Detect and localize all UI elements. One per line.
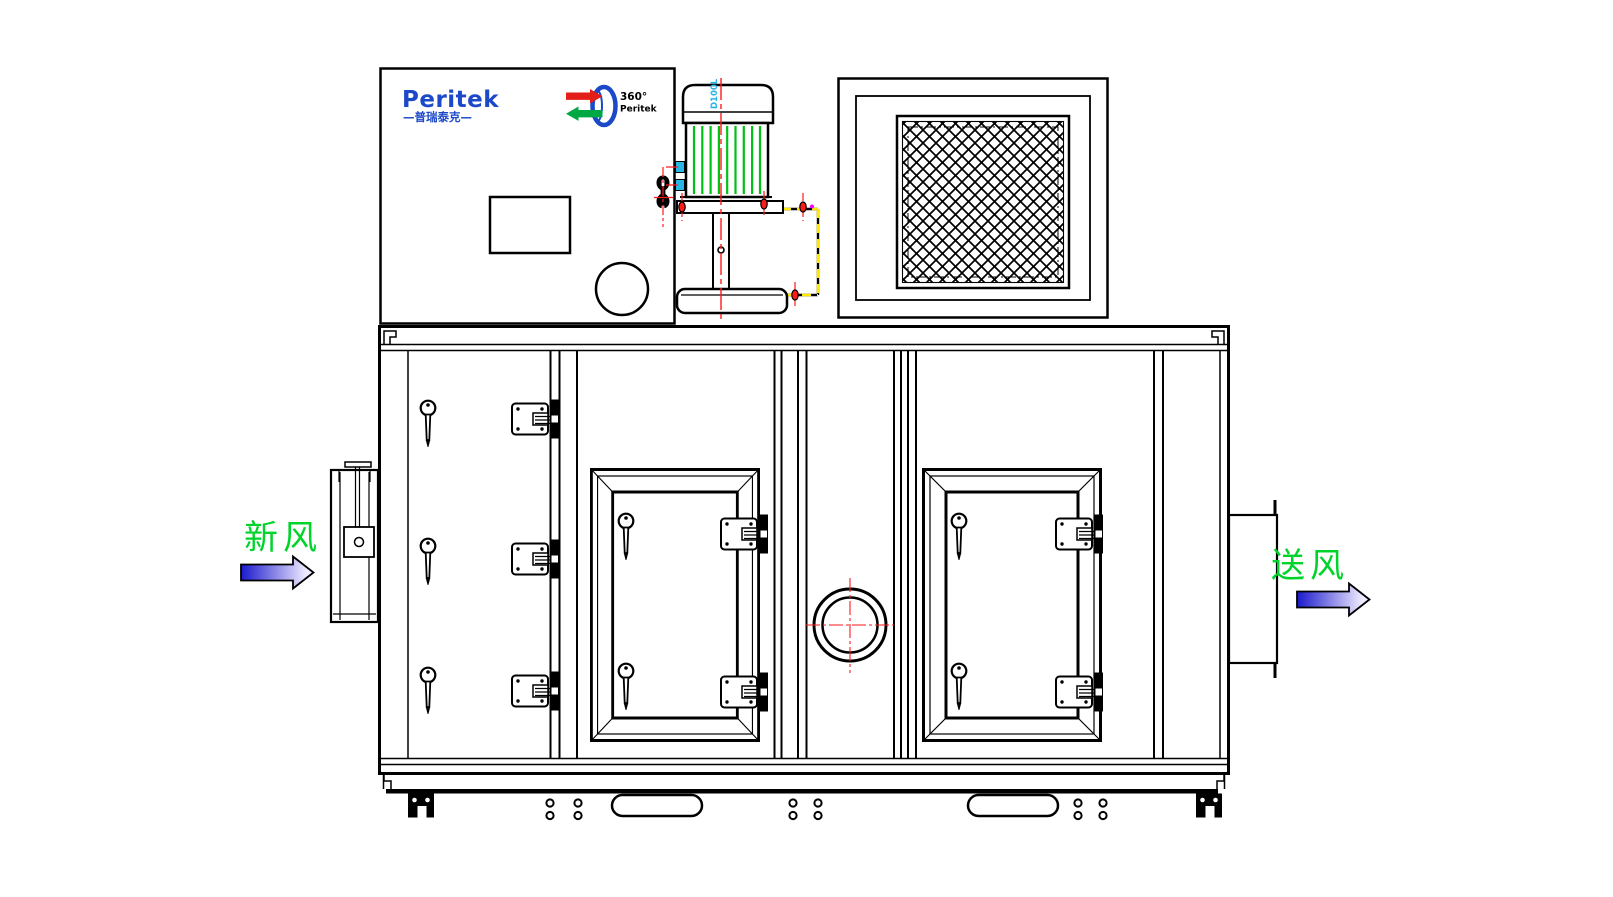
obround-slot xyxy=(612,795,702,816)
brand-logo-tagline: —普瑞泰克— xyxy=(403,110,472,124)
filter-intake-box xyxy=(839,79,1108,318)
magenta-ref-dot xyxy=(810,205,814,209)
door-latch-icon xyxy=(721,515,768,554)
drawing-canvas: Peritek —普瑞泰克— 360° Peritek xyxy=(0,0,1613,897)
access-port-circle xyxy=(596,263,648,315)
motor-assembly: D100L xyxy=(654,78,818,323)
supply-air-arrow-icon xyxy=(1297,584,1370,616)
display-window xyxy=(490,197,570,253)
outlet-flange-body xyxy=(1229,515,1277,663)
obround-slot xyxy=(968,795,1058,816)
supply-air-label: 送风 xyxy=(1271,546,1349,586)
door-latch-icon xyxy=(721,673,768,712)
middle-service-door xyxy=(591,470,768,741)
cyan-mount-tabs xyxy=(676,162,685,191)
outlet-flange xyxy=(1229,500,1277,678)
door-latch-icon xyxy=(512,400,559,439)
filter-grille-mesh xyxy=(903,122,1063,282)
door-latch-icon xyxy=(512,672,559,711)
base-frame xyxy=(384,774,1225,819)
motor-base-bracket xyxy=(677,289,787,313)
door-latch-icon xyxy=(1056,515,1103,554)
belt-guard-hidden-outline xyxy=(677,209,818,295)
fresh-air-label: 新风 xyxy=(244,518,322,558)
door-latch-icon xyxy=(1056,673,1103,712)
right-service-door xyxy=(924,470,1104,741)
damper-actuator-knob xyxy=(355,538,364,547)
motor-frame-label: D100L xyxy=(710,78,720,109)
foot-bracket xyxy=(1196,794,1222,818)
damper-shaft-cap xyxy=(345,462,371,467)
foot-bracket xyxy=(408,794,434,818)
control-cabinet: Peritek —普瑞泰克— 360° Peritek xyxy=(381,69,675,324)
rotor-brand-label: Peritek xyxy=(620,105,658,115)
base-rail-line xyxy=(386,789,1218,794)
motor-frame-size-text: D100L xyxy=(710,78,720,109)
technical-drawing: Peritek —普瑞泰克— 360° Peritek xyxy=(0,0,1613,897)
door-latch-icon xyxy=(512,540,559,579)
main-body xyxy=(380,327,1229,790)
motor-cap xyxy=(683,85,773,123)
inlet-damper xyxy=(331,462,378,622)
rotor-degrees-label: 360° xyxy=(620,91,647,103)
fresh-air-arrow-icon xyxy=(241,557,314,589)
red-bolt-markers xyxy=(679,199,806,300)
